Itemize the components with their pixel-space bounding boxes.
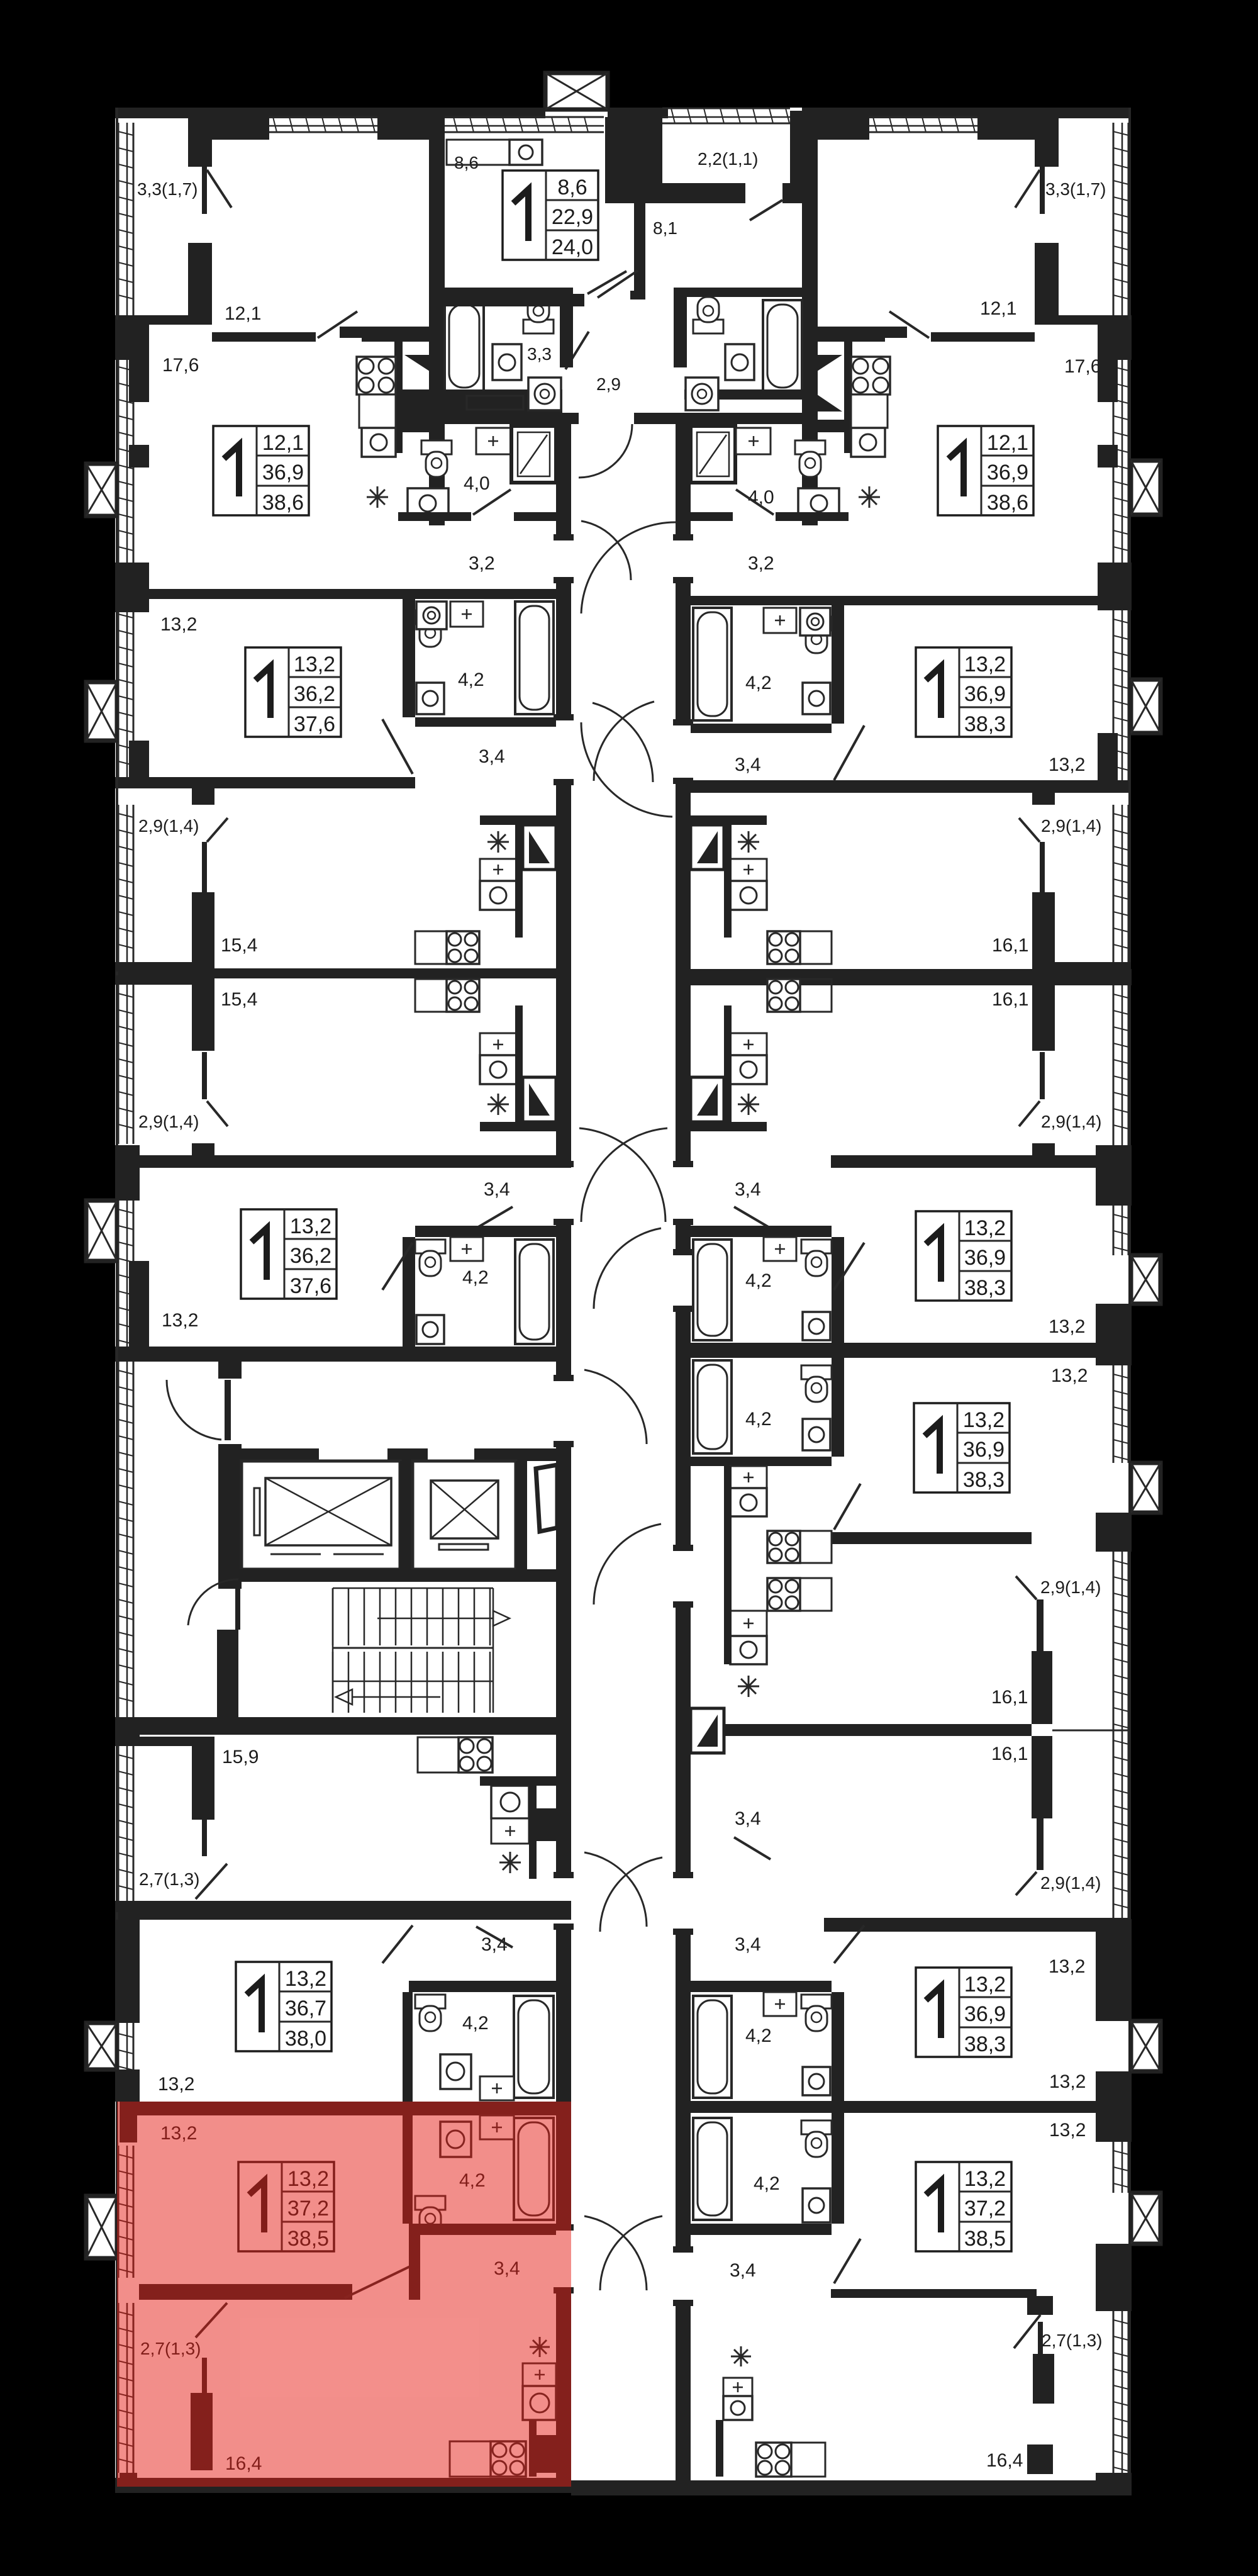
svg-text:4,0: 4,0: [464, 473, 490, 494]
svg-text:12,1: 12,1: [980, 298, 1016, 319]
svg-text:36,2: 36,2: [294, 682, 335, 706]
svg-text:4,2: 4,2: [458, 669, 484, 690]
svg-text:4,2: 4,2: [462, 1267, 489, 1288]
svg-text:37,2: 37,2: [964, 2197, 1006, 2220]
svg-text:2,9: 2,9: [596, 374, 621, 394]
svg-text:2,9(1,4): 2,9(1,4): [1040, 1873, 1101, 1893]
svg-text:13,2: 13,2: [160, 614, 197, 635]
svg-text:16,4: 16,4: [986, 2450, 1023, 2471]
svg-text:13,2: 13,2: [162, 1310, 198, 1331]
svg-text:37,6: 37,6: [294, 712, 335, 736]
svg-text:36,7: 36,7: [285, 1996, 326, 2020]
svg-text:4,2: 4,2: [745, 2025, 772, 2046]
svg-text:8,1: 8,1: [653, 218, 677, 238]
svg-text:36,9: 36,9: [987, 461, 1028, 484]
svg-text:3,3: 3,3: [527, 344, 552, 364]
svg-text:3,4: 3,4: [735, 1179, 761, 1200]
svg-text:15,9: 15,9: [222, 1747, 259, 1767]
svg-text:13,2: 13,2: [964, 1216, 1006, 1240]
svg-text:8,6: 8,6: [557, 176, 587, 199]
svg-text:37,6: 37,6: [290, 1274, 331, 1298]
svg-text:16,1: 16,1: [992, 989, 1028, 1010]
svg-text:13,2: 13,2: [290, 1214, 331, 1238]
svg-text:4,2: 4,2: [745, 1409, 772, 1430]
svg-text:15,4: 15,4: [221, 989, 257, 1010]
svg-text:2,9(1,4): 2,9(1,4): [138, 1112, 199, 1131]
svg-text:2,2(1,1): 2,2(1,1): [698, 149, 759, 169]
svg-text:13,2: 13,2: [964, 1973, 1006, 1996]
svg-text:38,6: 38,6: [987, 491, 1028, 515]
svg-text:2,7(1,3): 2,7(1,3): [1042, 2331, 1103, 2350]
svg-text:13,2: 13,2: [285, 1967, 326, 1991]
svg-text:17,6: 17,6: [162, 355, 199, 376]
svg-text:38,3: 38,3: [964, 1276, 1006, 1300]
svg-text:2,9(1,4): 2,9(1,4): [1040, 1577, 1101, 1597]
svg-text:2,9(1,4): 2,9(1,4): [138, 816, 199, 836]
svg-text:3,3(1,7): 3,3(1,7): [137, 179, 198, 199]
svg-text:12,1: 12,1: [262, 431, 304, 455]
svg-text:22,9: 22,9: [552, 205, 593, 229]
svg-text:36,9: 36,9: [964, 1246, 1006, 1270]
svg-text:3,4: 3,4: [735, 754, 761, 775]
svg-text:3,4: 3,4: [730, 2260, 756, 2281]
svg-text:24,0: 24,0: [552, 235, 593, 259]
svg-text:13,2: 13,2: [158, 2074, 194, 2095]
svg-text:13,2: 13,2: [1049, 1956, 1085, 1977]
svg-text:16,1: 16,1: [991, 1744, 1028, 1764]
svg-text:13,2: 13,2: [963, 1408, 1005, 1432]
svg-text:4,2: 4,2: [745, 673, 772, 693]
svg-text:3,4: 3,4: [484, 1179, 510, 1200]
svg-text:13,2: 13,2: [1049, 1316, 1085, 1337]
svg-text:2,9(1,4): 2,9(1,4): [1041, 1112, 1102, 1131]
svg-text:36,2: 36,2: [290, 1244, 331, 1268]
svg-text:13,2: 13,2: [1049, 2120, 1086, 2141]
svg-text:38,3: 38,3: [963, 1468, 1005, 1492]
svg-text:38,3: 38,3: [964, 712, 1006, 736]
svg-text:2,9(1,4): 2,9(1,4): [1041, 816, 1102, 836]
svg-text:12,1: 12,1: [225, 303, 261, 324]
svg-text:38,3: 38,3: [964, 2032, 1006, 2056]
svg-text:12,1: 12,1: [987, 431, 1028, 455]
svg-text:38,6: 38,6: [262, 491, 304, 515]
svg-text:3,2: 3,2: [748, 553, 774, 574]
svg-text:4,0: 4,0: [748, 487, 774, 508]
svg-text:36,9: 36,9: [963, 1438, 1005, 1462]
svg-text:16,1: 16,1: [991, 1687, 1028, 1708]
svg-text:36,9: 36,9: [262, 461, 304, 484]
svg-text:15,4: 15,4: [221, 935, 257, 956]
svg-text:38,0: 38,0: [285, 2027, 326, 2051]
svg-text:13,2: 13,2: [294, 652, 335, 676]
svg-text:13,2: 13,2: [1049, 754, 1085, 775]
svg-text:38,5: 38,5: [964, 2227, 1006, 2251]
svg-text:17,6: 17,6: [1064, 356, 1101, 377]
svg-text:4,2: 4,2: [754, 2173, 780, 2194]
svg-text:3,3(1,7): 3,3(1,7): [1045, 179, 1106, 199]
svg-text:3,4: 3,4: [735, 1934, 761, 1955]
svg-text:2,7(1,3): 2,7(1,3): [139, 1869, 200, 1889]
svg-text:3,4: 3,4: [479, 746, 505, 767]
svg-text:13,2: 13,2: [964, 652, 1006, 676]
svg-text:4,2: 4,2: [462, 2013, 489, 2034]
svg-text:16,1: 16,1: [992, 935, 1028, 956]
svg-text:36,9: 36,9: [964, 2002, 1006, 2026]
svg-text:13,2: 13,2: [964, 2167, 1006, 2191]
svg-text:36,9: 36,9: [964, 682, 1006, 706]
svg-text:3,2: 3,2: [469, 553, 495, 574]
svg-text:4,2: 4,2: [745, 1270, 772, 1291]
svg-text:13,2: 13,2: [1049, 2071, 1086, 2092]
svg-text:3,4: 3,4: [735, 1808, 761, 1829]
svg-text:8,6: 8,6: [454, 153, 479, 172]
svg-text:13,2: 13,2: [1051, 1365, 1088, 1386]
